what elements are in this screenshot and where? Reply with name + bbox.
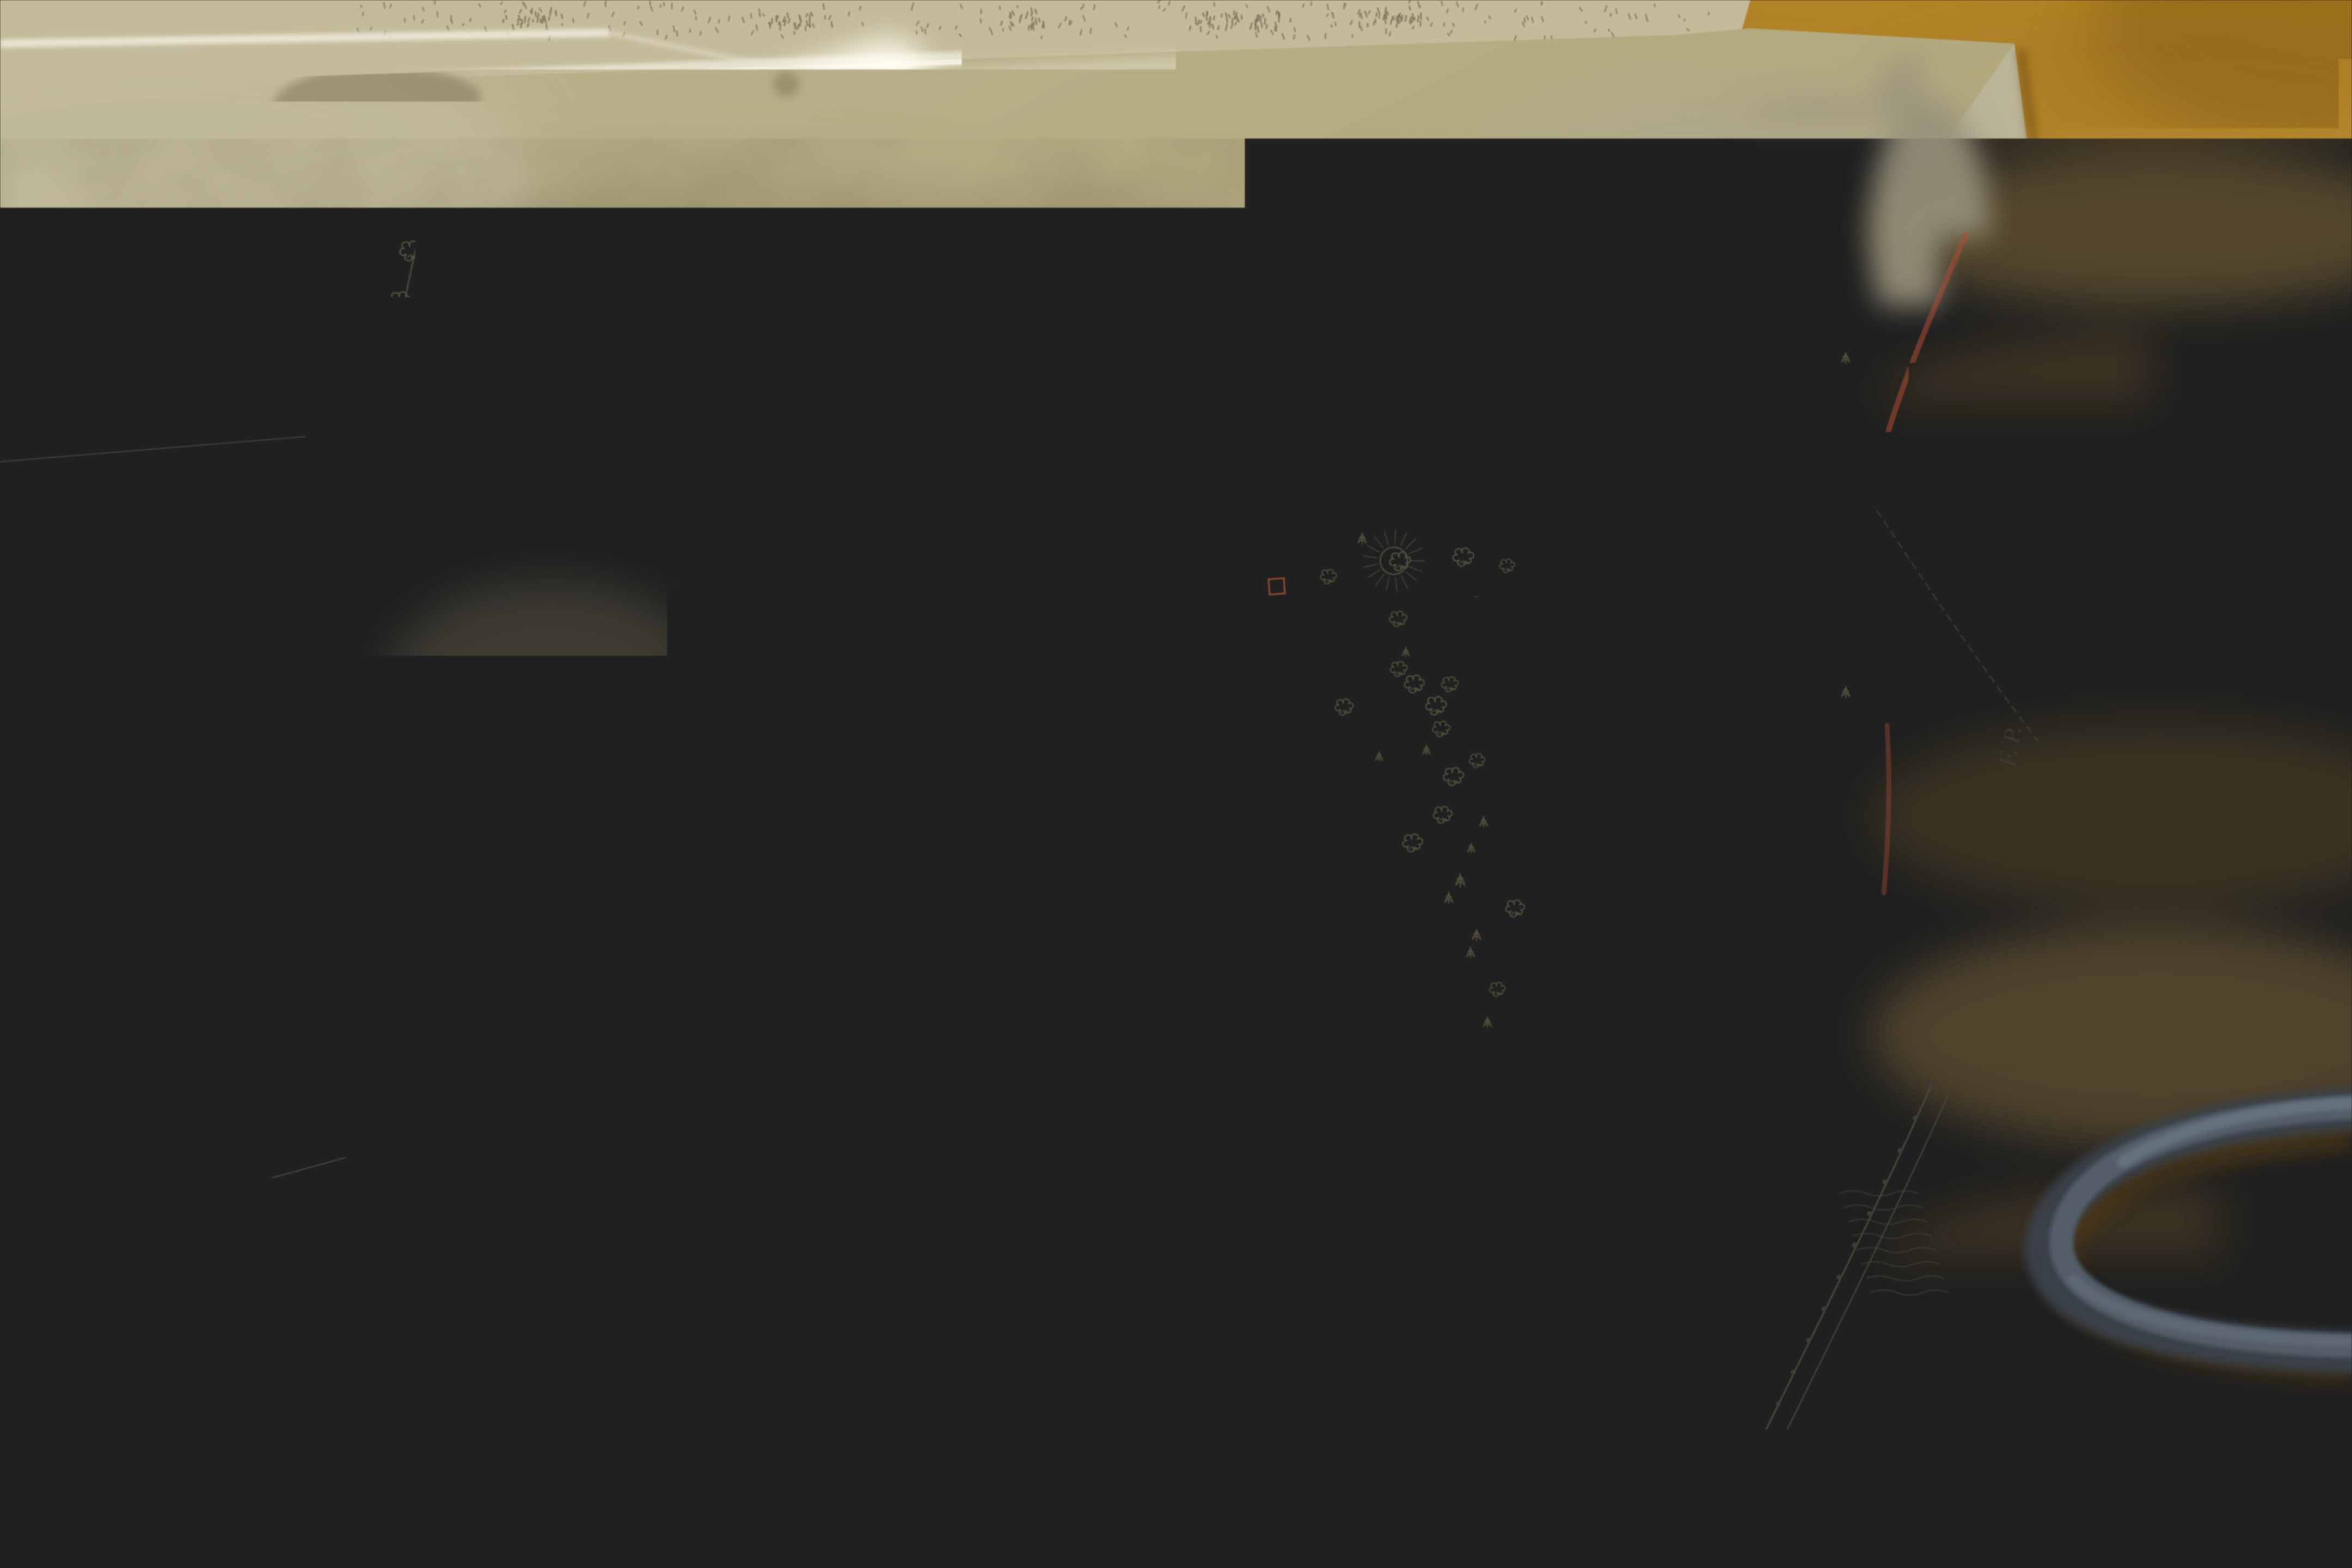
svg-text:6: 6 [1741,891,1755,922]
svg-text:1 . 519: 1 . 519 [1722,420,1791,448]
svg-text:9: 9 [1832,1464,1845,1494]
svg-text:Bunkers Hill: Bunkers Hill [1718,737,1913,785]
svg-text:707: 707 [556,326,604,361]
svg-text:11: 11 [1894,1131,1915,1156]
svg-text:699: 699 [838,980,886,1015]
svg-text:5: 5 [1699,687,1713,718]
svg-text:702: 702 [970,483,1018,519]
svg-text:598: 598 [1553,1051,1594,1082]
svg-text:1 . 435: 1 . 435 [1725,923,1794,951]
svg-text:. 463: . 463 [1802,260,1852,287]
svg-text:1 . 109: 1 . 109 [1796,382,1867,411]
svg-text:698: 698 [489,843,536,878]
svg-text:2392: 2392 [1201,601,1250,630]
svg-text:3: 3 [1885,416,1899,448]
svg-text:701: 701 [642,603,690,639]
svg-text:1 . 000: 1 . 000 [1878,598,1947,626]
svg-text:4 . 752: 4 . 752 [1398,964,1470,993]
svg-text:. 919: . 919 [1411,1524,1461,1552]
svg-text:1 . 048: 1 . 048 [1852,806,1883,874]
svg-text:Hollin Park: Hollin Park [429,701,648,755]
svg-text:Thorn Gate: Thorn Gate [1694,984,1882,1032]
svg-text:92.: 92. [1772,332,1838,390]
svg-text:. 676: . 676 [983,518,1038,548]
svg-text:130l.: 130l. [1762,815,1847,862]
svg-text:2 . 373: 2 . 373 [1274,313,1349,344]
svg-text:4: 4 [1897,567,1911,598]
svg-text:597: 597 [1651,1221,1695,1253]
svg-text:396: 396 [1556,1081,1594,1108]
svg-text:2: 2 [1736,388,1750,419]
svg-text:Old: Old [1490,1131,1534,1166]
svg-text:Old Coal Shaft: Old Coal Shaft [1271,1477,1443,1510]
svg-text:10 . 157: 10 . 157 [1210,1236,1298,1267]
svg-text:2 . 174: 2 . 174 [479,877,554,908]
svg-text:CCXV. 4.: CCXV. 4. [1677,127,1845,170]
svg-text:1 . 522: 1 . 522 [1735,1456,1804,1484]
svg-text:8: 8 [1848,1172,1862,1203]
svg-text:7 . 727: 7 . 727 [546,359,621,389]
svg-text:23: 23 [1511,1277,1558,1327]
svg-text:. 890: . 890 [1655,1253,1707,1282]
svg-text:SHEET: SHEET [1450,128,1605,171]
svg-text:Old Level: Old Level [1095,448,1211,485]
svg-text:. 754: . 754 [657,1221,711,1252]
svg-text:603: 603 [647,1188,694,1223]
svg-text:601: 601 [1224,1202,1271,1238]
svg-text:3 . 666: 3 . 666 [1407,230,1483,261]
svg-text:1472: 1472 [1790,1204,1904,1274]
svg-text:1: 1 [1814,231,1828,262]
svg-text:604: 604 [294,1379,341,1414]
svg-text:2391: 2391 [1204,663,1253,693]
svg-text:704: 704 [1416,197,1463,232]
svg-text:6 . 156: 6 . 156 [826,1014,902,1045]
svg-text:[WEST RIDING.]: [WEST RIDING.] [1146,139,1393,174]
svg-text:1 . 971: 1 . 971 [1683,718,1753,746]
svg-text:. 548: . 548 [833,816,887,847]
svg-text:. 204: . 204 [1818,1051,1866,1078]
svg-text:12: 12 [1901,825,1928,855]
svg-text:Spring: Spring [651,1413,731,1448]
svg-text:705: 705 [1281,279,1328,314]
svg-text:2732: 2732 [1555,1128,1633,1173]
